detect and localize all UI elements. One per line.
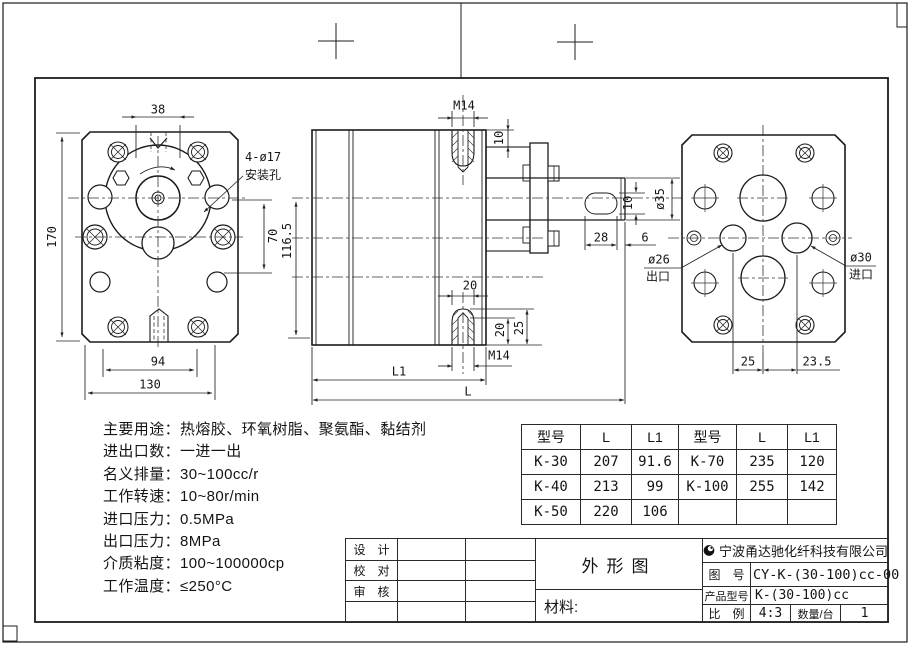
qty-label: 数量/台: [790, 604, 841, 623]
rear-inlet-dia: ø30: [850, 250, 872, 264]
sign-date-extra: [465, 601, 536, 623]
cell-l1: 91.6: [632, 450, 679, 475]
drawing-title: 外形图: [535, 538, 703, 590]
cell-l1: [788, 500, 837, 525]
spec-line: 名义排量：30~100cc/r: [103, 464, 426, 486]
cell-model: K-100: [679, 475, 737, 500]
dim-side-l1: L1: [392, 364, 406, 378]
product-model-label: 产品型号: [702, 586, 751, 605]
col-header-l1: L1: [788, 425, 837, 450]
cell-l: 235: [737, 450, 788, 475]
qty-value: 1: [840, 604, 889, 623]
drawing-no-label: 图 号: [702, 562, 751, 587]
dim-front-width: 130: [139, 377, 161, 391]
table-row: [679, 500, 837, 525]
dim-side-thread-depth: 20: [493, 323, 507, 337]
spec-line: 主要用途：热熔胶、环氧树脂、聚氨酯、黏结剂: [103, 419, 426, 441]
sign-value-extra: [397, 601, 466, 623]
dim-side-port-width: 20: [463, 278, 477, 292]
dim-rear-inlet-offset: 23.5: [803, 354, 832, 368]
spec-line: 进口压力：0.5MPa: [103, 509, 426, 531]
cell-l: 255: [737, 475, 788, 500]
spec-line: 进出口数：一进一出: [103, 441, 426, 463]
side-view-dimensions: [288, 111, 680, 405]
dim-side-shaft-dia: ø35: [653, 188, 667, 210]
dim-side-key-width: 10: [621, 196, 635, 210]
front-view-geometry: [68, 132, 248, 350]
cell-l1: 142: [788, 475, 837, 500]
dim-front-hole-spacing: 70: [266, 229, 280, 243]
dim-side-thread-bottom: M14: [488, 348, 510, 362]
sign-date-audit: [465, 580, 536, 602]
table-row: K-50 220 106: [522, 500, 679, 525]
cell-l: [737, 500, 788, 525]
dim-side-thread-top: M14: [453, 98, 475, 112]
spec-line: 工作转速：10~80r/min: [103, 486, 426, 508]
table-row: K-100 255 142: [679, 475, 837, 500]
sign-date-design: [465, 538, 536, 561]
cell-l1: 120: [788, 450, 837, 475]
dim-side-port-depth: 25: [512, 321, 526, 335]
dim-rear-outlet-offset: 25: [741, 354, 755, 368]
cell-model: K-70: [679, 450, 737, 475]
sign-label-design: 设 计: [345, 538, 398, 561]
size-table-right: 型号 L L1 K-70 235 120 K-100 255 142: [678, 424, 837, 525]
col-header-l1: L1: [632, 425, 679, 450]
product-model-value: K-(30-100)cc: [750, 586, 889, 605]
dim-side-height: 116.5: [280, 223, 294, 259]
dim-front-height: 170: [45, 226, 59, 248]
sign-label-extra: [345, 601, 398, 623]
col-header-l: L: [581, 425, 632, 450]
mount-hole-callout-dia: 4-ø17: [245, 150, 281, 164]
cell-model: K-30: [522, 450, 581, 475]
side-view-geometry: [292, 95, 682, 374]
mount-hole-callout-text: 安装孔: [245, 166, 281, 183]
cell-l: 220: [581, 500, 632, 525]
dim-side-step: 10: [492, 131, 506, 145]
company-cell: 宁波甬达驰化纤科技有限公司: [702, 538, 889, 563]
sign-value-check: [397, 560, 466, 581]
sign-value-audit: [397, 580, 466, 602]
company-name: 宁波甬达驰化纤科技有限公司: [719, 541, 888, 560]
cell-model: K-50: [522, 500, 581, 525]
cell-l: 213: [581, 475, 632, 500]
sign-date-check: [465, 560, 536, 581]
cell-model: K-40: [522, 475, 581, 500]
company-logo-icon: [703, 542, 715, 559]
sign-value-design: [397, 538, 466, 561]
material-label: 材料:: [535, 589, 703, 623]
cell-model: [679, 500, 737, 525]
scale-value: 4:3: [750, 604, 791, 623]
col-header-model: 型号: [679, 425, 737, 450]
cell-l1: 106: [632, 500, 679, 525]
sign-label-check: 校 对: [345, 560, 398, 581]
rear-view-geometry: [668, 125, 852, 352]
col-header-l: L: [737, 425, 788, 450]
table-row: K-40 213 99: [522, 475, 679, 500]
scale-label: 比 例: [702, 604, 751, 623]
cell-l1: 99: [632, 475, 679, 500]
dim-front-bolt-spacing: 94: [151, 354, 165, 368]
table-row: K-70 235 120: [679, 450, 837, 475]
cell-l: 207: [581, 450, 632, 475]
dim-front-top-width: 38: [151, 102, 165, 116]
size-table-left: 型号 L L1 K-30 207 91.6 K-40 213 99 K-50 2…: [521, 424, 679, 525]
rear-inlet-label: 进口: [849, 266, 873, 283]
dim-side-key-length: 28: [594, 230, 608, 244]
drawing-no-value: CY-K-(30-100)cc-00: [750, 562, 889, 587]
engineering-drawing-sheet: 38 170 70 94 130 4-ø17 安装孔 M14 10 116.5 …: [0, 0, 910, 645]
rear-outlet-dia: ø26: [648, 252, 670, 266]
sign-label-audit: 审 核: [345, 580, 398, 602]
col-header-model: 型号: [522, 425, 581, 450]
dim-side-l: L: [464, 384, 471, 398]
table-row: K-30 207 91.6: [522, 450, 679, 475]
rear-outlet-label: 出口: [646, 268, 670, 285]
dim-side-key-to-end: 6: [641, 230, 648, 244]
